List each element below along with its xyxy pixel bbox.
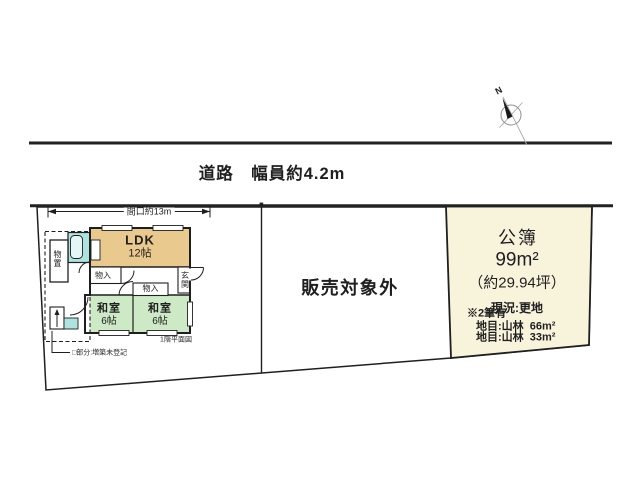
frontage-label: 間口約13m — [124, 207, 175, 216]
washstand — [64, 318, 78, 329]
washitsu-left-size-label: 6帖 — [101, 317, 117, 327]
kitchen-fixture — [91, 240, 100, 260]
entrance-label: 玄関 — [181, 271, 189, 289]
ldk-size-label: 12帖 — [128, 249, 151, 260]
washitsu-right-name-label: 和室 — [148, 304, 172, 315]
storage-label: 物置 — [53, 250, 61, 268]
divider-corner-tick — [260, 203, 264, 207]
diagram-linework — [0, 0, 640, 480]
closet-a-label: 物入 — [95, 272, 111, 280]
closet-b-label: 物入 — [143, 285, 159, 293]
plan-caption: 1階平面図 — [160, 337, 192, 344]
washitsu-left-name-label: 和室 — [97, 304, 121, 315]
washitsu-right-size-label: 6帖 — [152, 317, 168, 327]
parcel-tsubo-label: （約29.94坪） — [468, 276, 566, 291]
parcel-area-label: 99m² — [495, 251, 538, 270]
parcel-note-line1: 地目:山林 66m² — [476, 321, 555, 332]
parcel-note-line2: 地目:山林 33m² — [476, 333, 555, 344]
bathtub — [71, 236, 83, 259]
road-label: 道路 幅員約4.2m — [199, 166, 346, 183]
parcel-note-heading: ※2筆有 — [467, 309, 506, 320]
extension-note: □部分:増築未登記 — [72, 349, 127, 356]
ldk-name-label: LDK — [125, 234, 155, 247]
land-plot-diagram: N 道路 幅員約4.2m 間口約13m 販売対象外 LDK 12帖 物入 物入 … — [0, 0, 640, 480]
not-for-sale-label: 販売対象外 — [301, 279, 399, 297]
parcel-register-label: 公簿 — [498, 229, 538, 247]
compass-icon — [500, 97, 528, 145]
